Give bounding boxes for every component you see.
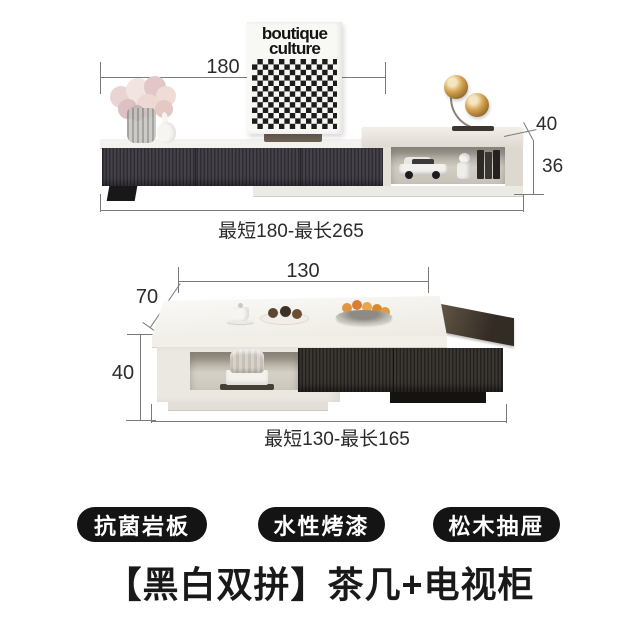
tv-width-label: 180	[198, 56, 248, 79]
pastry	[268, 308, 278, 318]
tv-height-dimension-line	[533, 140, 534, 194]
table-lamp-globe	[444, 75, 468, 99]
product-title: 【黑白双拼】茶几+电视柜	[0, 556, 640, 608]
poster-title: boutique culture	[247, 22, 342, 56]
tv-height-label: 36	[542, 156, 563, 178]
rabbit-figurine	[157, 122, 176, 143]
ct-range-label: 最短130-最长165	[237, 424, 437, 451]
ct-plinth	[168, 402, 328, 411]
glass-vase	[127, 108, 156, 143]
toy-car-wheel	[432, 171, 440, 179]
tv-range-dimension-line	[100, 210, 523, 211]
tv-cabinet-foot	[107, 186, 138, 201]
table-lamp-globe	[465, 93, 489, 117]
book	[477, 150, 484, 179]
ct-dark-extension-top	[436, 303, 514, 346]
ct-fluted-drawer	[298, 348, 503, 392]
ct-width-right-tick	[428, 267, 429, 293]
cake-tin	[230, 349, 264, 373]
teapot-lid	[238, 303, 243, 308]
checkerboard-pattern	[252, 59, 337, 129]
tv-width-right-tick	[385, 62, 386, 94]
poster-title-line2: culture	[247, 41, 342, 56]
drawer-seam	[195, 148, 196, 186]
drawer-seam	[300, 148, 301, 186]
ct-range-left-tick	[151, 404, 152, 423]
tv-range-right-tick	[523, 194, 524, 212]
tv-extendable-base	[253, 186, 523, 197]
badge-rock-slab: 抗菌岩板	[77, 507, 207, 542]
ct-width-left-tick	[178, 267, 179, 293]
toy-car	[399, 157, 447, 179]
table-lamp-base	[452, 126, 494, 131]
ct-range-right-tick	[506, 404, 507, 423]
ct-width-label: 130	[278, 260, 328, 283]
badge-paint: 水性烤漆	[258, 507, 385, 542]
ct-range-dimension-line	[151, 421, 506, 422]
ct-height-top-tick	[127, 334, 155, 335]
badge-drawer: 松木抽屉	[433, 507, 560, 542]
tv-depth-label: 40	[536, 114, 557, 136]
tv-cabinet-right-frame	[383, 147, 391, 186]
ct-depth-label: 70	[134, 286, 160, 309]
pastry	[280, 306, 291, 317]
tv-cabinet-left-fluted-front	[102, 148, 388, 186]
tv-range-left-tick	[100, 194, 101, 212]
drawer-seam	[393, 348, 394, 392]
book	[493, 150, 500, 179]
product-dimension-image: 180 boutique	[0, 0, 640, 640]
fruit	[352, 300, 362, 310]
tv-cabinet-right-top	[362, 127, 523, 147]
astronaut-figurine	[457, 162, 471, 179]
ct-height-label: 40	[110, 362, 136, 385]
tv-height-bottom-tick	[514, 194, 544, 195]
ct-dark-foot	[390, 392, 486, 403]
ct-height-dimension-line	[140, 334, 141, 421]
poster-stand	[264, 133, 322, 142]
toy-car-wheel	[405, 171, 413, 179]
fruit-bowl	[336, 310, 392, 324]
teapot	[232, 307, 249, 321]
tv-width-left-tick	[100, 62, 101, 94]
tv-cabinet-right-frame	[505, 147, 523, 186]
tv-range-label: 最短180-最长265	[191, 216, 391, 243]
book	[485, 152, 492, 179]
poster: boutique culture	[247, 22, 342, 134]
pastry	[292, 309, 302, 319]
